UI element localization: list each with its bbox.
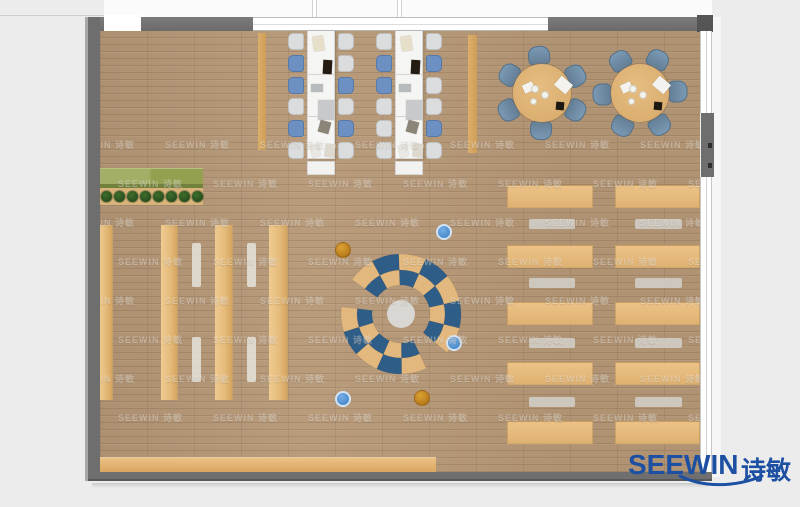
table-item	[318, 100, 334, 120]
window-band-right-lower	[700, 177, 712, 472]
study-table-group	[375, 28, 443, 176]
bottom-shelf	[98, 457, 436, 472]
table-plate	[629, 85, 637, 93]
study-chair	[426, 120, 442, 137]
window-band-top	[253, 17, 548, 31]
reading-table-bench	[529, 338, 575, 348]
table-plate	[531, 85, 539, 93]
wall-bottom	[88, 472, 712, 481]
table-item	[323, 60, 333, 74]
reading-table	[615, 421, 700, 444]
study-chair	[288, 98, 304, 115]
floor-plan-canvas: SEEWIN 诗敏SEEWIN 诗敏SEEWIN 诗敏SEEWIN 诗敏SEEW…	[0, 0, 800, 507]
door-hinge-mark	[708, 163, 712, 168]
plant	[153, 191, 164, 202]
lounge-center-rug	[387, 300, 415, 328]
table-item	[312, 35, 325, 51]
table-item	[399, 84, 411, 92]
brand-logo-chinese: 诗敏	[741, 451, 791, 487]
table-item	[411, 60, 421, 74]
study-table-endcap	[307, 161, 335, 175]
wall-top	[141, 17, 253, 31]
study-chair	[338, 120, 354, 137]
study-table-group	[287, 28, 355, 176]
reading-table-bench	[635, 338, 682, 348]
study-table-endcap	[395, 161, 423, 175]
reading-table-bench	[529, 219, 575, 229]
table-item	[406, 100, 422, 120]
study-chair	[338, 33, 354, 50]
reading-bench	[247, 337, 256, 382]
study-chair	[288, 120, 304, 137]
table-plate	[530, 98, 537, 105]
round-table-chair	[529, 121, 552, 141]
plant	[166, 191, 177, 202]
study-chair	[426, 55, 442, 72]
study-chair	[426, 33, 442, 50]
study-chair	[288, 55, 304, 72]
study-chair	[288, 33, 304, 50]
planter-box	[98, 168, 203, 188]
plant	[140, 191, 151, 202]
study-chair	[338, 77, 354, 94]
ottoman-ball	[414, 390, 430, 406]
round-table-chair	[668, 80, 688, 103]
study-chair	[288, 77, 304, 94]
plant	[114, 191, 125, 202]
reading-table	[615, 185, 700, 208]
plant	[179, 191, 190, 202]
table-plate	[541, 91, 549, 99]
wood-panel	[468, 35, 477, 153]
reading-table-bench	[529, 278, 575, 288]
study-chair	[426, 142, 442, 159]
study-chair	[338, 55, 354, 72]
table-plate	[639, 91, 647, 99]
ottoman-ball	[335, 391, 351, 407]
ottoman-ball	[335, 242, 351, 258]
ottoman-ball	[436, 224, 452, 240]
study-chair	[288, 142, 304, 159]
lounge-sofa-arcs	[326, 239, 476, 389]
reading-table	[507, 185, 593, 208]
wall-top-right	[548, 17, 697, 31]
study-chair	[376, 55, 392, 72]
reading-table-bench	[635, 278, 682, 288]
reading-table	[507, 302, 593, 325]
study-chair	[426, 77, 442, 94]
reading-table	[615, 245, 700, 268]
table-item	[400, 35, 413, 51]
plant	[127, 191, 138, 202]
table-item	[311, 84, 323, 92]
lounge-sofa-segment	[444, 301, 461, 328]
reading-table-bench	[635, 397, 682, 407]
furniture-layer	[0, 0, 800, 507]
study-chair	[338, 98, 354, 115]
reading-bench	[192, 337, 201, 382]
round-table-chair	[592, 83, 612, 106]
reading-bench	[247, 243, 256, 287]
wood-panel	[258, 33, 266, 150]
table-book	[556, 102, 565, 111]
reading-table	[507, 421, 593, 444]
reading-table	[507, 245, 593, 268]
reading-table	[507, 362, 593, 385]
plant	[192, 191, 203, 202]
reading-table	[615, 362, 700, 385]
table-book	[654, 102, 663, 111]
bookshelf	[98, 225, 113, 400]
table-plate	[628, 98, 635, 105]
study-chair	[376, 33, 392, 50]
study-chair	[376, 120, 392, 137]
reading-table	[615, 302, 700, 325]
table-item	[324, 144, 335, 158]
door-hinge-mark	[708, 143, 712, 148]
study-chair	[376, 98, 392, 115]
study-chair	[338, 142, 354, 159]
reading-bench	[192, 243, 201, 287]
reading-table-bench	[529, 397, 575, 407]
reading-table-bench	[635, 219, 682, 229]
table-item	[412, 144, 423, 158]
wall-shadow	[92, 483, 708, 488]
bookshelf	[269, 225, 288, 400]
study-chair	[376, 77, 392, 94]
wall-end-cap	[697, 15, 713, 32]
wall-left	[85, 17, 100, 481]
plant	[101, 191, 112, 202]
study-chair	[426, 98, 442, 115]
study-chair	[376, 142, 392, 159]
ottoman-ball	[446, 335, 462, 351]
round-table-chair	[527, 45, 551, 66]
bookshelf	[161, 225, 178, 400]
bookshelf	[215, 225, 233, 400]
window-band-right-upper	[700, 31, 712, 113]
door-opening	[104, 15, 142, 31]
brand-logo: SEEWIN 诗敏	[628, 449, 798, 489]
lounge-sofa-segment	[341, 307, 359, 332]
